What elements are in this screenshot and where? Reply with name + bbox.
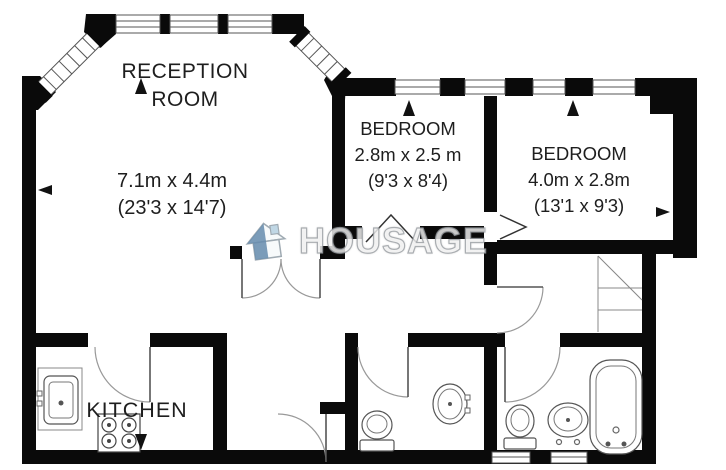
room-name: BEDROOM bbox=[500, 141, 658, 167]
dimension-arrow-icon bbox=[403, 100, 415, 116]
window bbox=[465, 80, 505, 94]
window bbox=[593, 80, 635, 94]
reception-room-label: RECEPTION ROOM bbox=[62, 58, 308, 114]
window bbox=[533, 80, 565, 94]
room-name: RECEPTION bbox=[62, 58, 308, 86]
dimension-imperial: (23'3 x 14'7) bbox=[60, 195, 284, 222]
dimension-imperial: (13'1 x 9'3) bbox=[500, 193, 658, 219]
window bbox=[228, 15, 272, 33]
door-bathroom-2-swing-icon bbox=[505, 347, 560, 402]
bedroom-2-label: BEDROOM 4.0m x 2.8m (13'1 x 9'3) bbox=[500, 141, 658, 219]
door-bathroom-1-swing-icon bbox=[358, 347, 408, 397]
room-name: ROOM bbox=[62, 86, 308, 114]
room-name: BEDROOM bbox=[335, 116, 481, 142]
room-name: KITCHEN bbox=[62, 398, 212, 423]
dimension-imperial: (9'3 x 8'4) bbox=[335, 168, 481, 194]
window bbox=[395, 80, 440, 94]
closet-icon bbox=[598, 256, 642, 332]
door-bedroom-1-mark-icon bbox=[366, 215, 416, 242]
window bbox=[551, 452, 587, 463]
kitchen-label: KITCHEN bbox=[62, 398, 212, 423]
toilet-icon bbox=[360, 411, 394, 451]
window bbox=[116, 15, 160, 33]
window bbox=[170, 15, 218, 33]
dimension-arrow-icon bbox=[38, 185, 52, 195]
dimension-metric: 2.8m x 2.5 m bbox=[335, 142, 481, 168]
toilet-icon bbox=[504, 405, 536, 449]
bedroom-1-label: BEDROOM 2.8m x 2.5 m (9'3 x 8'4) bbox=[335, 116, 481, 194]
dimension-metric: 4.0m x 2.8m bbox=[500, 167, 658, 193]
basin-icon bbox=[548, 403, 588, 445]
dimension-arrow-icon bbox=[567, 100, 579, 116]
door-reception-double-swing-icon bbox=[242, 259, 320, 298]
bathtub-icon bbox=[590, 360, 642, 454]
dimension-arrow-icon bbox=[656, 207, 670, 217]
floorplan: RECEPTION ROOM 7.1m x 4.4m (23'3 x 14'7)… bbox=[0, 0, 726, 470]
basin-icon bbox=[433, 384, 470, 424]
dimension-metric: 7.1m x 4.4m bbox=[60, 168, 284, 195]
door-corridor-swing-icon bbox=[497, 287, 543, 333]
reception-room-dimensions: 7.1m x 4.4m (23'3 x 14'7) bbox=[60, 168, 284, 222]
window bbox=[492, 452, 530, 463]
door-kitchen-swing-icon bbox=[95, 347, 150, 402]
